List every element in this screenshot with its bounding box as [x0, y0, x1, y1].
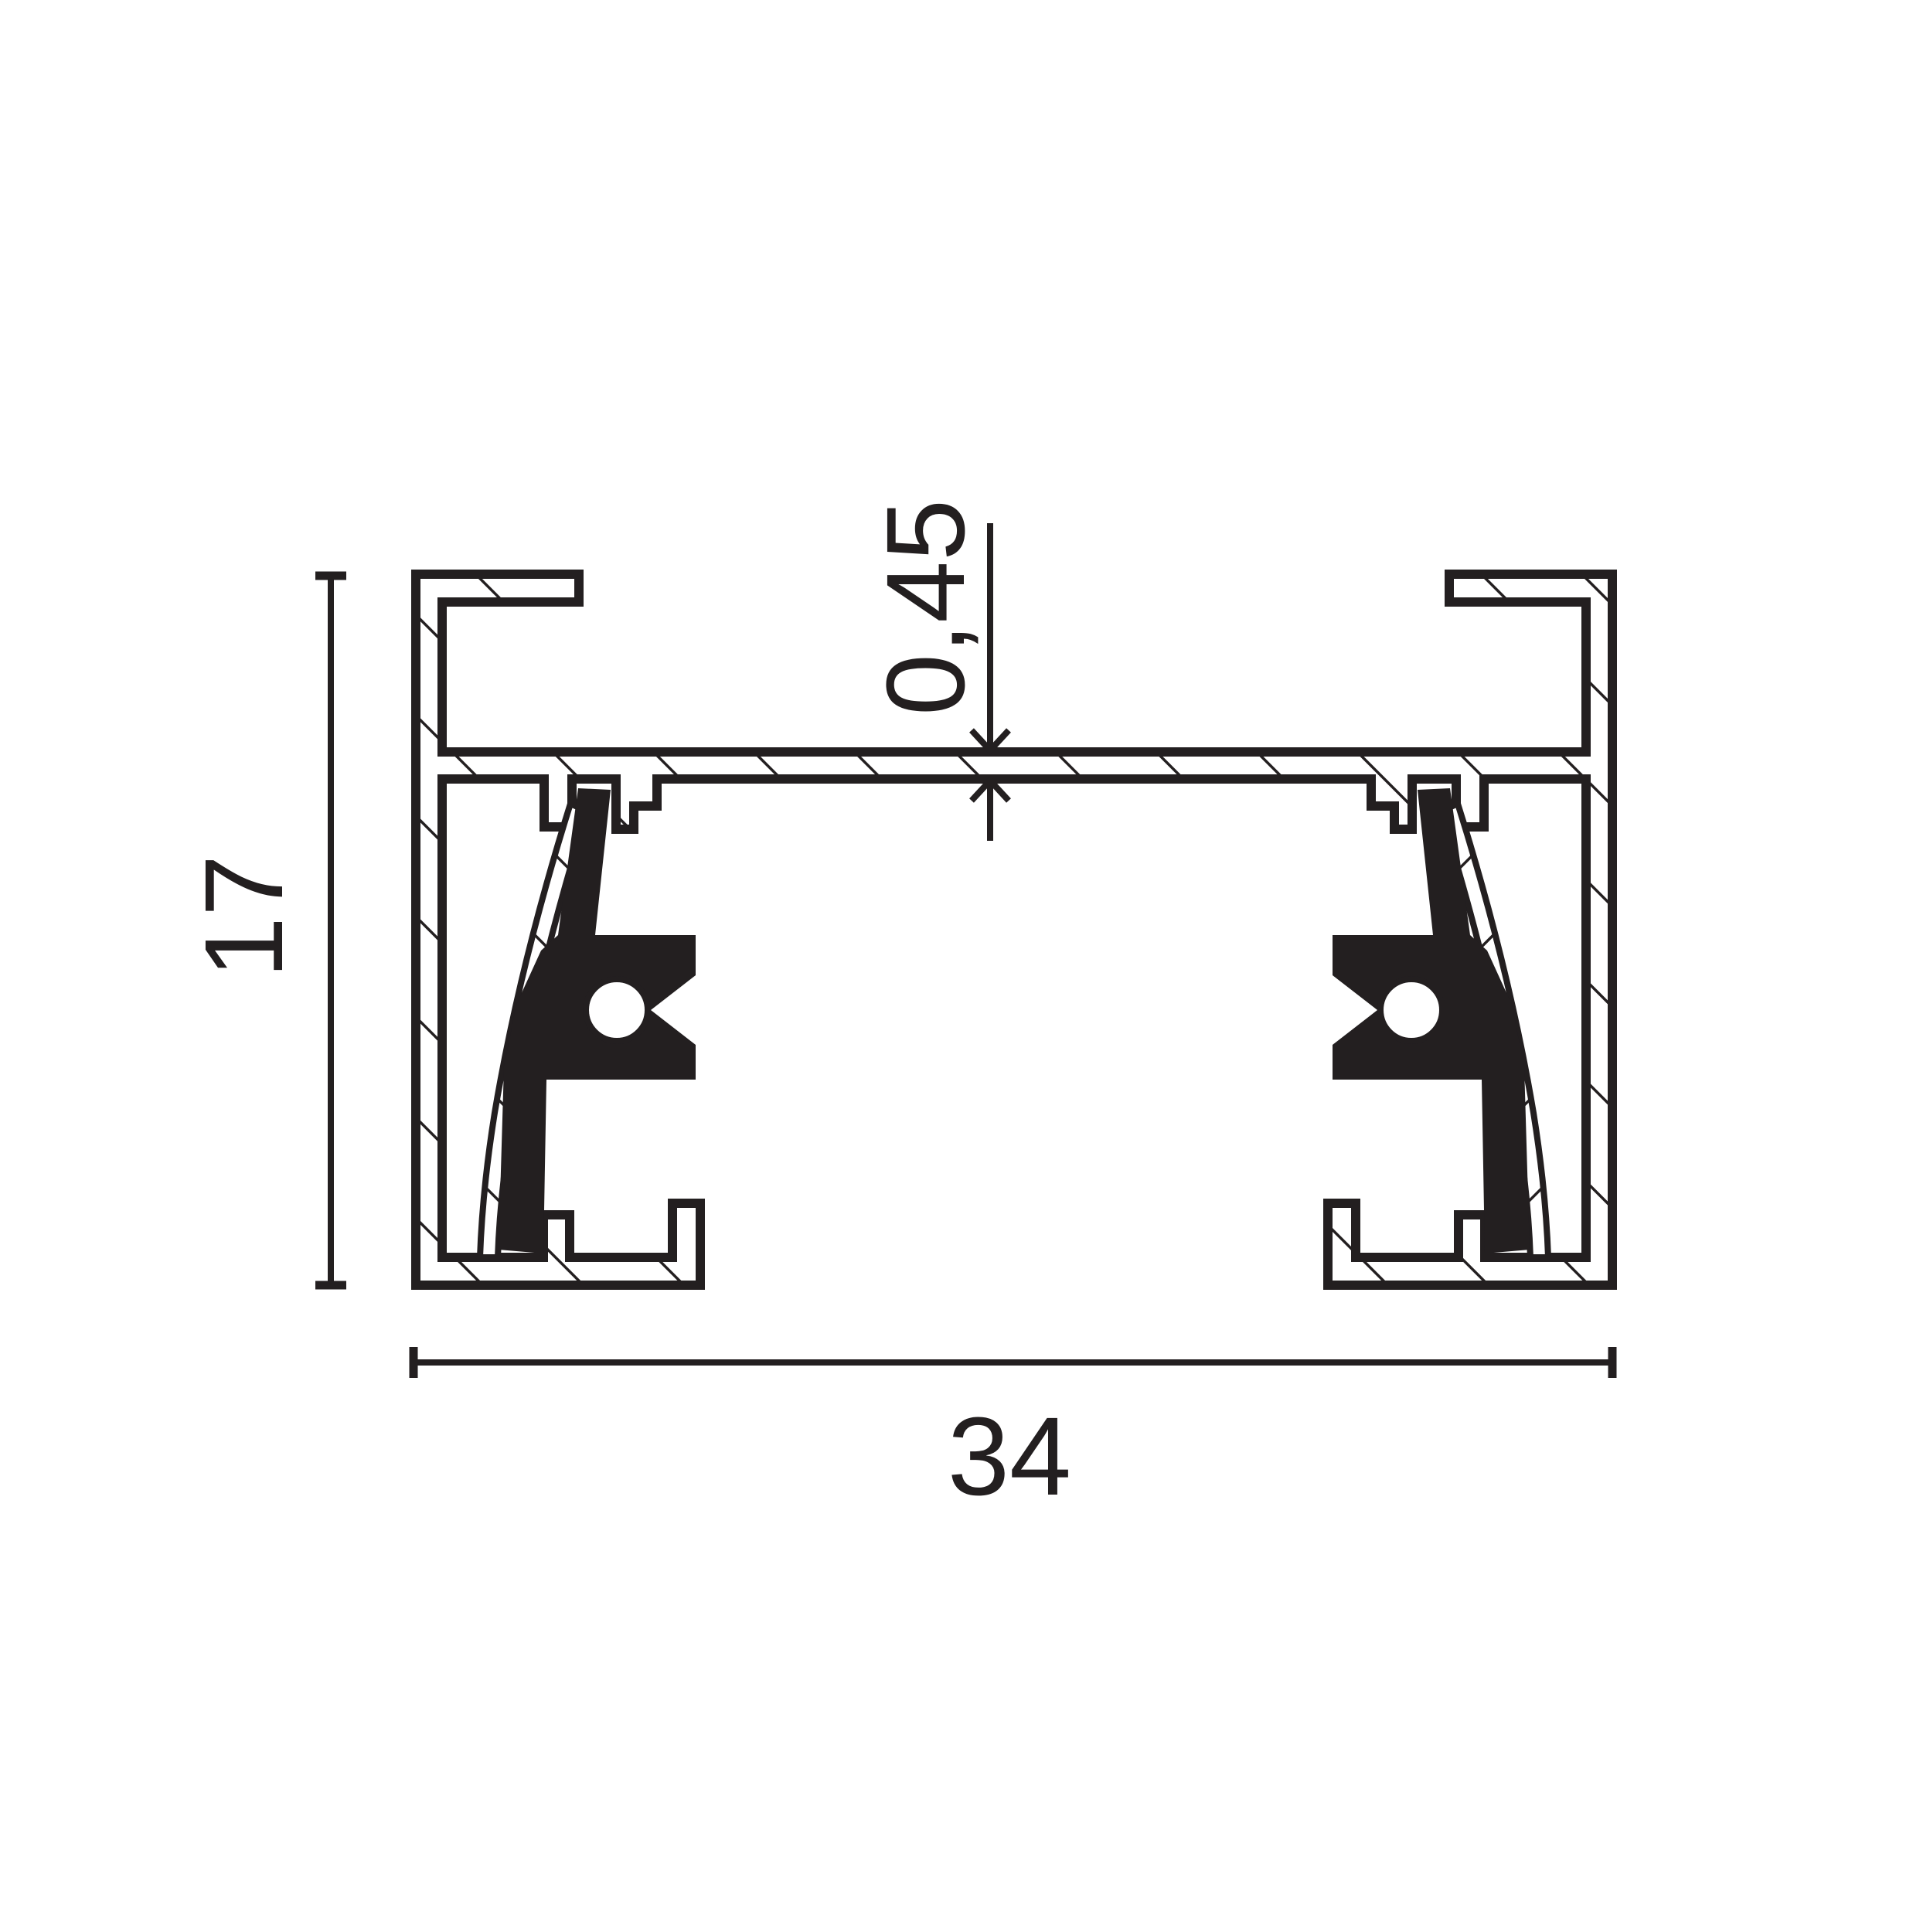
technical-drawing: 17 34 0,45: [0, 0, 1930, 1932]
page: 17 34 0,45: [0, 0, 1930, 1932]
dimension-height-label: 17: [182, 855, 306, 978]
conductor-left: [586, 979, 648, 1041]
dimension-width-label: 34: [948, 1394, 1071, 1519]
dimension-thickness-label: 0,45: [863, 499, 988, 716]
conductor-right: [1380, 979, 1442, 1041]
